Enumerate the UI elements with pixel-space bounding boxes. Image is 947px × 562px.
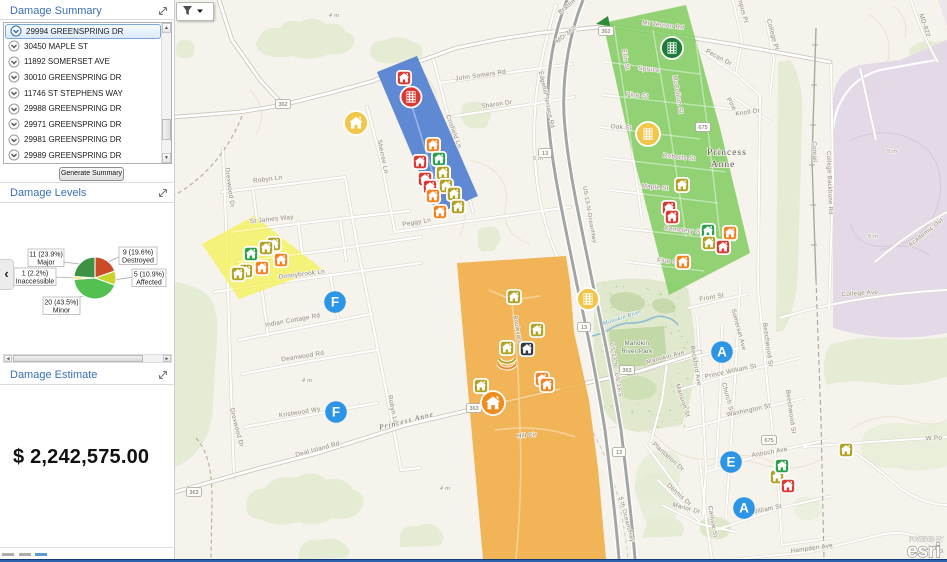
svg-text:13: 13 [616, 450, 622, 456]
svg-text:362: 362 [601, 29, 610, 35]
svg-text:5 m: 5 m [868, 234, 879, 240]
svg-text:11 (23.9%): 11 (23.9%) [29, 252, 63, 259]
svg-text:W Po: W Po [925, 435, 942, 443]
svg-text:675: 675 [698, 125, 707, 131]
svg-text:E: E [726, 455, 735, 470]
svg-text:Manokin: Manokin [625, 341, 650, 347]
svg-text:363: 363 [469, 406, 478, 412]
svg-text:Anne: Anne [711, 160, 736, 170]
svg-text:A: A [717, 345, 727, 360]
svg-text:F: F [332, 405, 340, 420]
svg-text:esri: esri [907, 541, 941, 559]
svg-text:5 (10.9%): 5 (10.9%) [134, 272, 164, 279]
svg-text:Minor: Minor [53, 308, 71, 315]
svg-text:363: 363 [189, 490, 198, 496]
svg-text:363: 363 [622, 368, 631, 374]
svg-text:Princess: Princess [707, 148, 747, 158]
svg-text:A: A [739, 501, 749, 516]
svg-text:20 (43.5%): 20 (43.5%) [44, 300, 78, 307]
svg-text:Affected: Affected [136, 280, 162, 287]
svg-text:13: 13 [581, 325, 587, 331]
svg-text:Destroyed: Destroyed [122, 258, 154, 265]
svg-text:Inaccessible: Inaccessible [16, 279, 55, 286]
svg-text:4 m: 4 m [329, 13, 340, 19]
svg-text:4 m: 4 m [440, 486, 451, 492]
svg-text:River Park: River Park [621, 349, 653, 355]
svg-text:1 (2.2%): 1 (2.2%) [22, 271, 48, 278]
svg-text:F: F [331, 295, 339, 310]
svg-text:5 m: 5 m [887, 149, 898, 155]
svg-text:9 (19.6%): 9 (19.6%) [123, 250, 153, 257]
svg-text:675: 675 [764, 438, 773, 444]
svg-text:Conrail: Conrail [811, 141, 818, 162]
svg-text:4 m: 4 m [302, 378, 313, 384]
svg-text:362: 362 [278, 102, 287, 108]
svg-text:Major: Major [37, 260, 55, 267]
svg-text:5 m: 5 m [533, 156, 544, 162]
